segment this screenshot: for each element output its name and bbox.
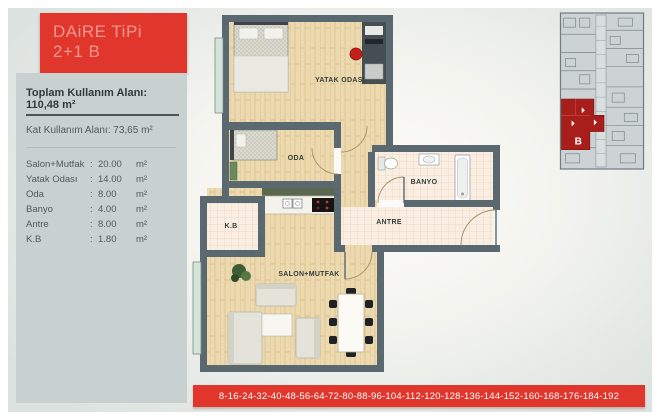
room-value: 8.00 (98, 217, 136, 232)
bench-icon (230, 162, 237, 180)
room-sep: : (90, 172, 98, 187)
floor-area-label: Kat Kullanım Alanı: 73,65 m² (26, 125, 179, 136)
room-name: K.B (26, 232, 90, 247)
unit-b-label: B (575, 137, 582, 148)
floor-plan: YATAK ODASI ODA BANYO ANTRE K.B SALON+MU… (190, 8, 520, 388)
area-list-row: Antre : 8.00 m² (26, 217, 179, 232)
single-bed-icon (230, 130, 277, 160)
toilet-icon (378, 157, 398, 170)
room-value: 8.00 (98, 187, 136, 202)
brochure-canvas: DAiRE TiPi 2+1 B Toplam Kullanım Alanı: … (8, 8, 652, 412)
room-name: Antre (26, 217, 90, 232)
room-sep: : (90, 187, 98, 202)
room-sep: : (90, 217, 98, 232)
room-name: Yatak Odası (26, 172, 90, 187)
unit-type-title-line2: 2+1 B (53, 42, 187, 62)
room-value: 20.00 (98, 157, 136, 172)
double-bed-icon (234, 20, 288, 92)
room-sep: : (90, 202, 98, 217)
area-list-row: Oda : 8.00 m² (26, 187, 179, 202)
total-area-label: Toplam Kullanım Alanı: 110,48 m² (26, 87, 179, 116)
floor-numbers-text: 8-16-24-32-40-48-56-64-72-80-88-96-104-1… (219, 391, 619, 402)
stove-icon (312, 198, 334, 212)
panel-divider (26, 147, 176, 148)
room-value: 14.00 (98, 172, 136, 187)
room-label-yatak-odasi: YATAK ODASI (315, 77, 365, 84)
area-list-row: Banyo : 4.00 m² (26, 202, 179, 217)
room-unit: m² (136, 157, 147, 172)
room-label-oda: ODA (288, 155, 304, 162)
room-floor-antre (341, 207, 493, 245)
room-label-banyo: BANYO (411, 179, 438, 186)
area-list-row: K.B : 1.80 m² (26, 232, 179, 247)
building-site-plan: B (558, 12, 646, 170)
area-list-row: Yatak Odası : 14.00 m² (26, 172, 179, 187)
room-sep: : (90, 157, 98, 172)
room-label-kb: K.B (225, 223, 238, 230)
washbasin-icon (419, 154, 439, 165)
room-name: Oda (26, 187, 90, 202)
room-unit: m² (136, 172, 147, 187)
room-value: 1.80 (98, 232, 136, 247)
room-unit: m² (136, 217, 147, 232)
unit-type-badge: DAiRE TiPi 2+1 B (40, 13, 187, 73)
room-sep: : (90, 232, 98, 247)
wardrobe-icon (362, 22, 386, 84)
room-unit: m² (136, 202, 147, 217)
bathtub-icon (455, 155, 470, 202)
red-chair-icon (350, 48, 362, 60)
room-name: Salon+Mutfak (26, 157, 90, 172)
room-label-antre: ANTRE (376, 219, 402, 226)
floor-numbers-bar: 8-16-24-32-40-48-56-64-72-80-88-96-104-1… (193, 385, 645, 407)
room-unit: m² (136, 187, 147, 202)
area-list-row: Salon+Mutfak : 20.00 m² (26, 157, 179, 172)
room-label-salon: SALON+MUTFAK (278, 271, 339, 278)
room-value: 4.00 (98, 202, 136, 217)
brochure-page: DAiRE TiPi 2+1 B Toplam Kullanım Alanı: … (0, 0, 660, 420)
info-panel: Toplam Kullanım Alanı: 110,48 m² Kat Kul… (16, 73, 187, 403)
site-plan-corridor (596, 15, 606, 167)
unit-type-title-line1: DAiRE TiPi (53, 22, 187, 42)
room-unit: m² (136, 232, 147, 247)
room-name: Banyo (26, 202, 90, 217)
coffee-table-icon (262, 314, 292, 336)
